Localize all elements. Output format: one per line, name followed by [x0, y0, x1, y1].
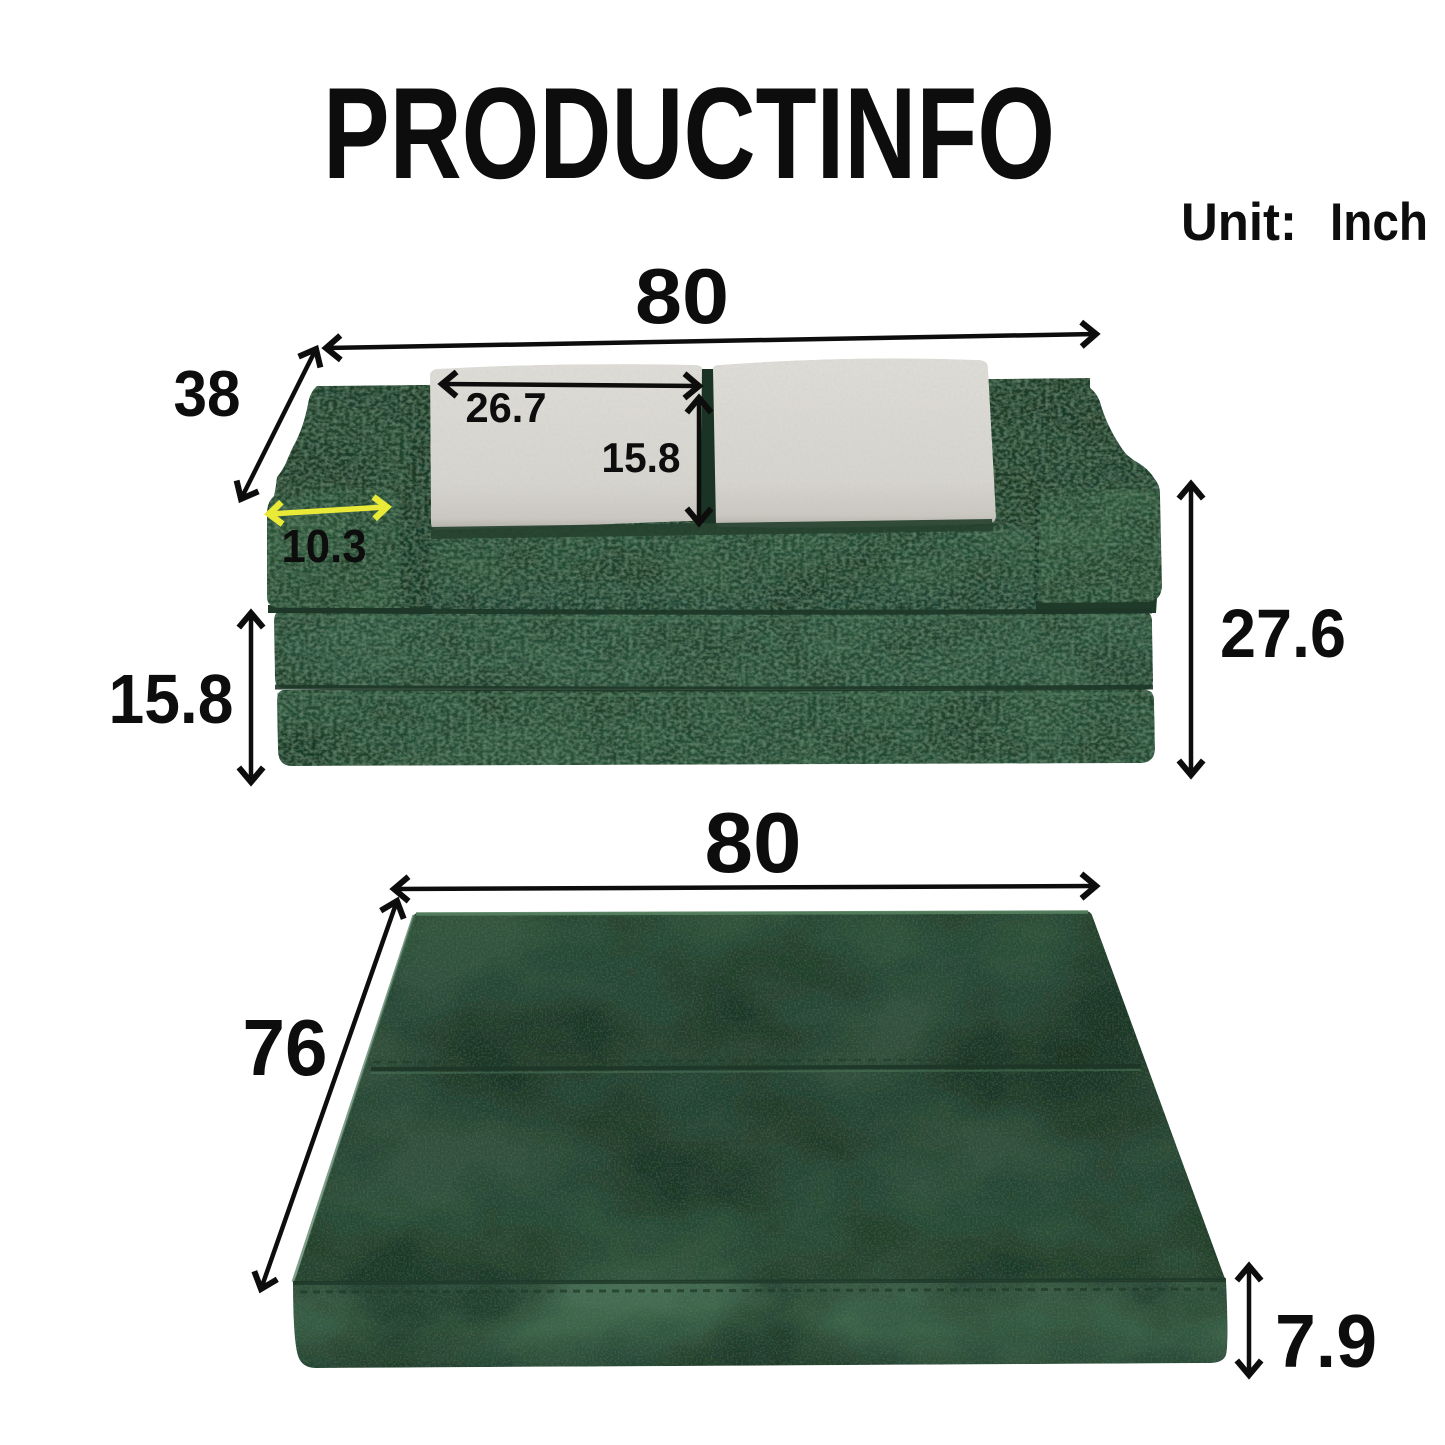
- svg-text:15.8: 15.8: [602, 434, 681, 481]
- svg-text:27.6: 27.6: [1220, 595, 1346, 672]
- svg-text:80: 80: [705, 796, 802, 891]
- svg-text:Unit:: Unit:: [1181, 193, 1297, 252]
- svg-text:76: 76: [243, 1003, 328, 1092]
- svg-text:Inch: Inch: [1330, 193, 1428, 252]
- svg-text:7.9: 7.9: [1275, 1299, 1377, 1383]
- svg-text:38: 38: [174, 357, 241, 430]
- svg-text:26.7: 26.7: [466, 384, 547, 431]
- svg-text:15.8: 15.8: [109, 660, 234, 738]
- svg-text:PRODUCTINFO: PRODUCTINFO: [323, 60, 1055, 206]
- svg-text:10.3: 10.3: [282, 520, 367, 572]
- svg-text:80: 80: [635, 252, 729, 340]
